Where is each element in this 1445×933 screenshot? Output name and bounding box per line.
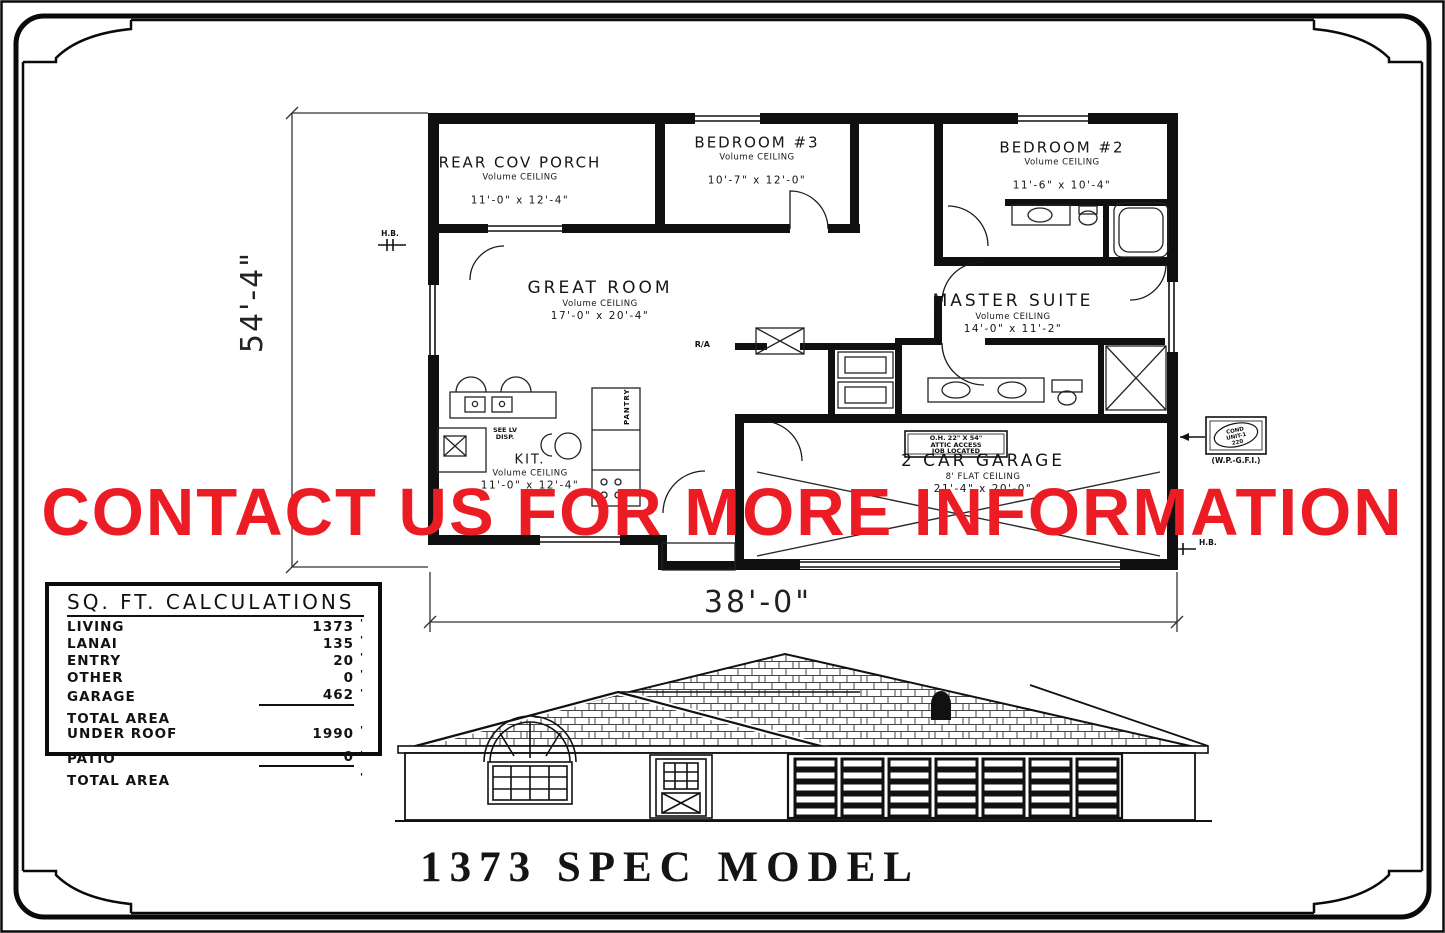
sink-basin-icon: [492, 397, 512, 412]
table-row-total-under-roof: TOTAL AREA UNDER ROOF 1990 ': [67, 712, 364, 743]
washer-icon: [838, 352, 893, 378]
arrow-icon: [1180, 433, 1189, 441]
sink-icon: [942, 382, 970, 398]
pantry-label: PANTRY: [623, 388, 631, 425]
fascia: [398, 746, 1208, 753]
room-label-master-suite: MASTER SUITE Volume CEILING 14'-0" x 11'…: [933, 291, 1094, 335]
blueprint-page: { "watermark": {"text": "CONTACT US FOR …: [0, 0, 1445, 933]
watermark-text: CONTACT US FOR MORE INFORMATION: [41, 474, 1403, 551]
sqft-calculations-table: SQ. FT. CALCULATIONS LIVING 1373 ' LANAI…: [45, 582, 382, 756]
hose-bib-label: H.B.: [381, 229, 399, 238]
table-row-lanai: LANAI 135 ': [67, 637, 364, 653]
dryer-icon: [838, 382, 893, 408]
dim-width-label: 38'-0": [704, 585, 812, 620]
sink-basin-icon: [465, 397, 485, 412]
table-row-entry: ENTRY 20 ': [67, 654, 364, 670]
table-row-living: LIVING 1373 ': [67, 620, 364, 636]
model-title: 1373 SPEC MODEL: [390, 843, 950, 892]
see-lv-line2: DISP.: [496, 433, 515, 441]
room-label-bedroom3: BEDROOM #3 Volume CEILING 10'-7" x 12'-0…: [694, 134, 819, 187]
dim-height-label: 54'-4": [235, 251, 270, 353]
bar-stool-icon: [501, 377, 531, 392]
condenser-unit: COND UNIT-1 220 (W.P.-G.F.I.): [1180, 417, 1266, 465]
room-label-bedroom2: BEDROOM #2 Volume CEILING 11'-6" x 10'-4…: [999, 139, 1124, 192]
toilet-icon: [1079, 211, 1097, 225]
attic-vent-icon: [931, 691, 951, 720]
table-row-patio: PATIO 0 ': [67, 750, 364, 768]
room-label-rear-porch: REAR COV PORCH Volume CEILING 11'-0" x 1…: [439, 154, 602, 207]
hose-bib-top: [378, 239, 406, 251]
sink-icon: [1028, 208, 1052, 222]
table-row-garage: GARAGE 462 ': [67, 688, 364, 706]
return-air-label: R/A: [695, 340, 711, 349]
table-row-total-area: TOTAL AREA ': [67, 774, 364, 790]
cond-wp-gfi-label: (W.P.-G.F.I.): [1212, 456, 1261, 465]
sqft-table-title: SQ. FT. CALCULATIONS: [67, 590, 364, 617]
bar-stool-icon: [456, 377, 486, 392]
toilet-icon: [1058, 391, 1076, 405]
table-row-other: OTHER 0 ': [67, 671, 364, 687]
sink-icon: [998, 382, 1026, 398]
room-label-great-room: GREAT ROOM Volume CEILING 17'-0" x 20'-4…: [527, 278, 672, 322]
front-elevation: [390, 640, 1220, 835]
